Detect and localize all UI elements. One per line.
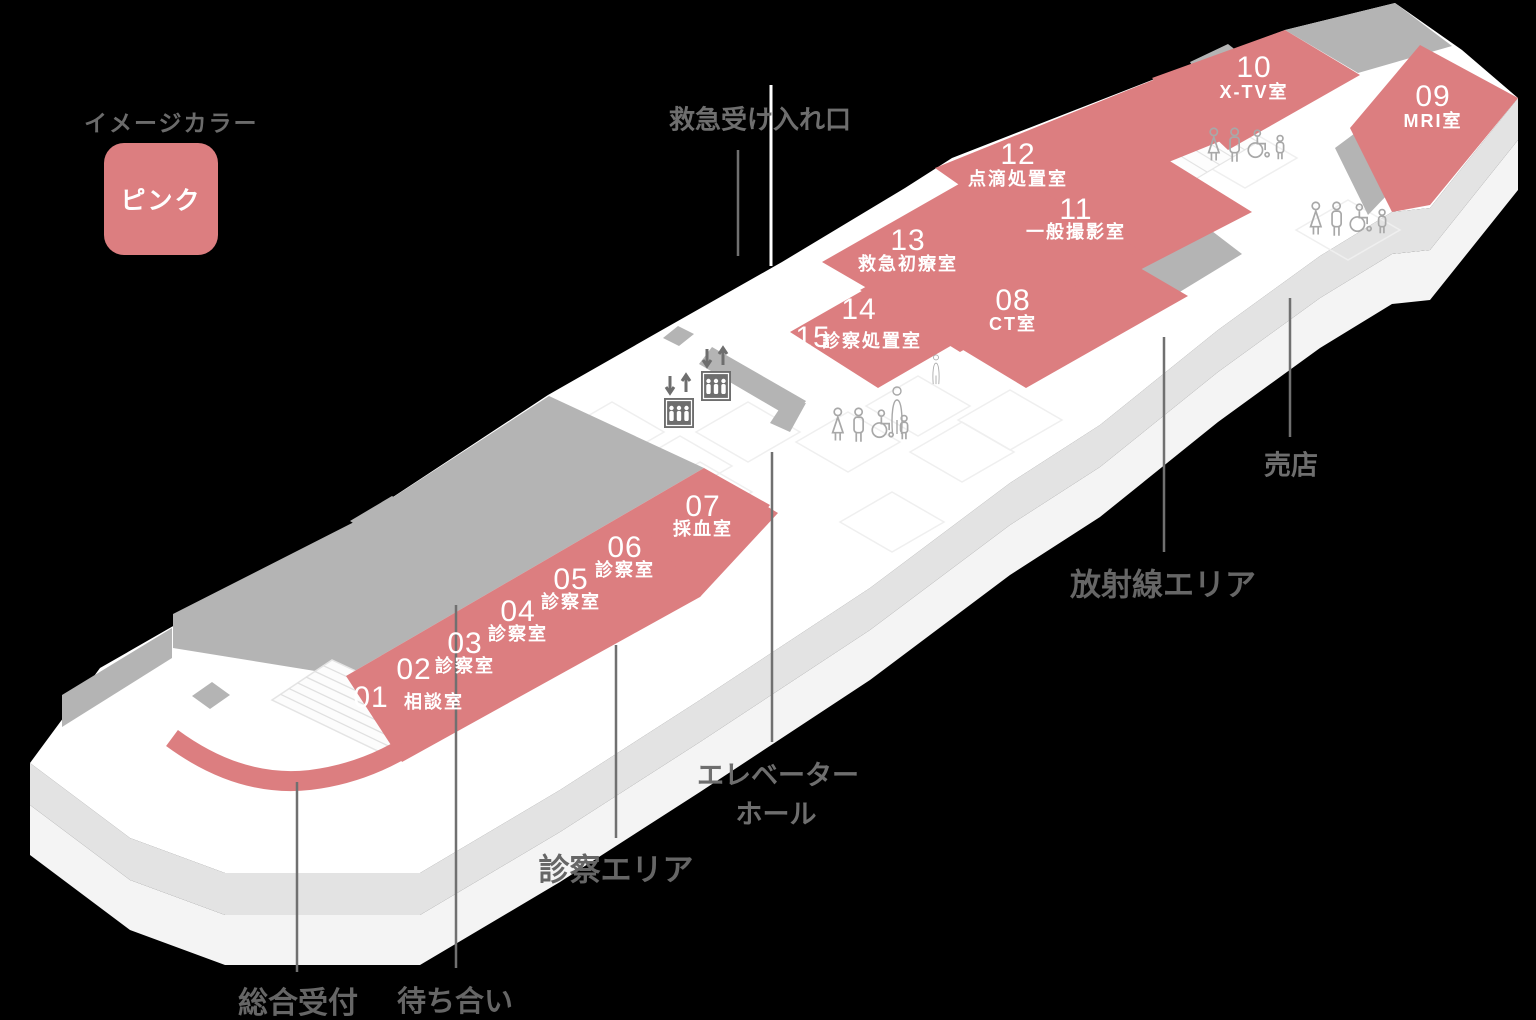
label-reception: 総合受付 [238,978,358,1020]
room-name-10: X-TV室 [1219,78,1288,104]
room-number-14: 14 [841,293,876,327]
label-elevator-hall-line2: ホール [736,793,817,832]
room-name-09: MRI室 [1404,107,1463,133]
room-name-07: 採血室 [673,515,733,541]
label-elevator-hall-line1: エレベーター [697,754,859,793]
floor-plan-drawing [0,0,1536,1020]
legend-title: イメージカラー [84,104,259,138]
label-exam-area: 診察エリア [539,845,694,890]
room-name-01: 相談室 [404,688,464,714]
room-name-06: 診察室 [595,556,655,582]
room-name-03: 診察室 [435,652,495,678]
legend-swatch-label: ピンク [120,181,201,217]
label-waiting: 待ち合い [397,978,513,1020]
room-name-05: 診察室 [541,588,601,614]
label-radiation-area: 放射線エリア [1070,560,1256,605]
room-name-15: 診察処置室 [822,327,922,353]
room-name-08: CT室 [989,310,1037,336]
room-name-12: 点滴処置室 [968,165,1068,191]
hospital-floor-map: イメージカラー ピンク 救急受け入れ口 総合受付 待ち合い 診察エリア エレベー… [0,0,1536,1020]
room-number-01: 01 [353,681,388,715]
label-shop: 売店 [1264,444,1318,483]
room-name-11: 一般撮影室 [1026,218,1126,244]
room-name-04: 診察室 [488,620,548,646]
legend-color-swatch: ピンク [104,143,218,255]
room-name-13: 救急初療室 [858,250,958,276]
room-number-02: 02 [396,653,431,687]
label-emergency-entrance: 救急受け入れ口 [669,100,851,137]
